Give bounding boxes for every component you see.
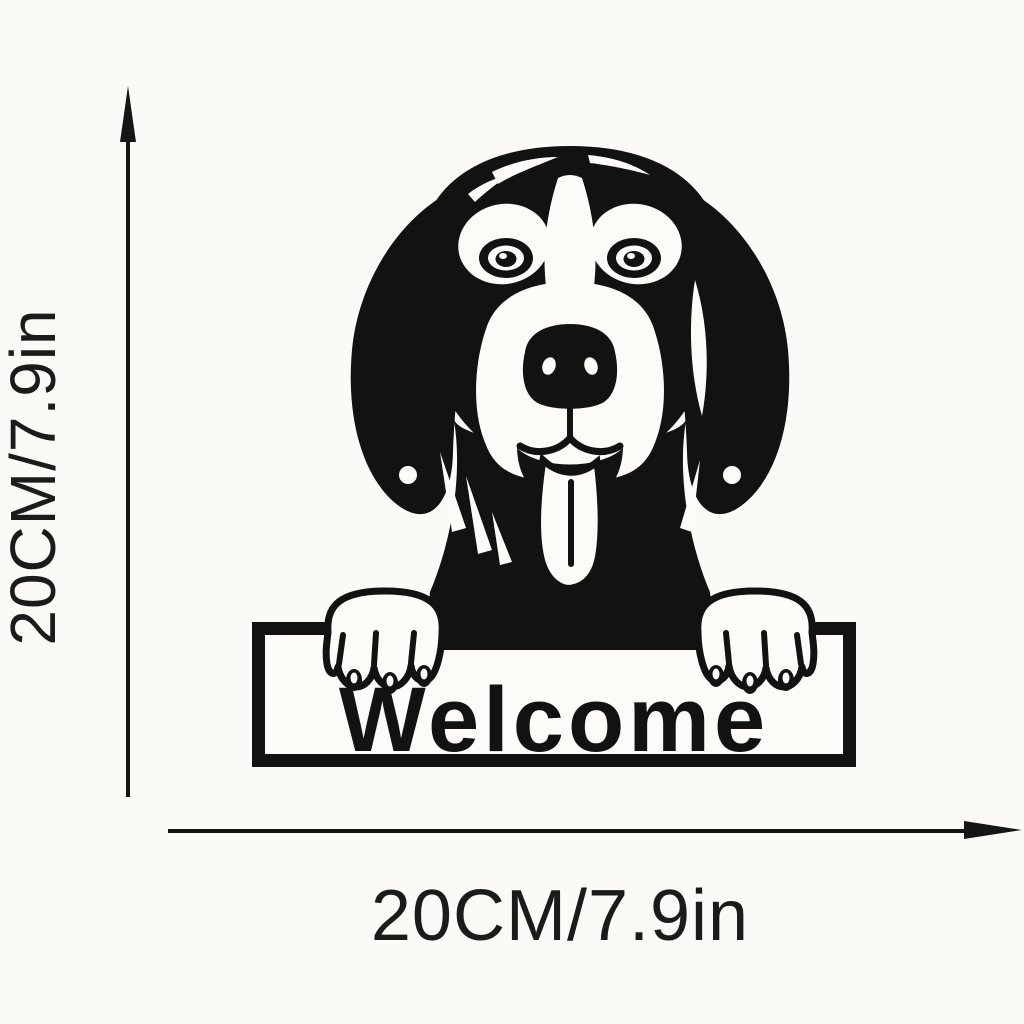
dog-eye-right bbox=[607, 238, 661, 278]
ear-hole-right bbox=[723, 466, 741, 484]
vertical-dimension-label: 20CM/7.9in bbox=[0, 287, 68, 667]
vertical-dimension-line bbox=[126, 140, 130, 797]
horizontal-dimension-line bbox=[168, 829, 965, 833]
product-image: 20CM/7.9in 20CM/7.9in bbox=[0, 0, 1024, 1024]
dog-nose bbox=[523, 324, 617, 409]
arrow-right-icon bbox=[964, 821, 1022, 839]
ear-hole-left bbox=[399, 466, 417, 484]
dog-eye-left bbox=[479, 238, 533, 278]
dog-tongue bbox=[538, 460, 602, 588]
arrow-up-icon bbox=[120, 86, 136, 142]
horizontal-dimension-label: 20CM/7.9in bbox=[310, 874, 810, 958]
welcome-sign-text: Welcome bbox=[339, 669, 769, 771]
dog-welcome-sign-illustration: Welcome bbox=[240, 130, 870, 790]
